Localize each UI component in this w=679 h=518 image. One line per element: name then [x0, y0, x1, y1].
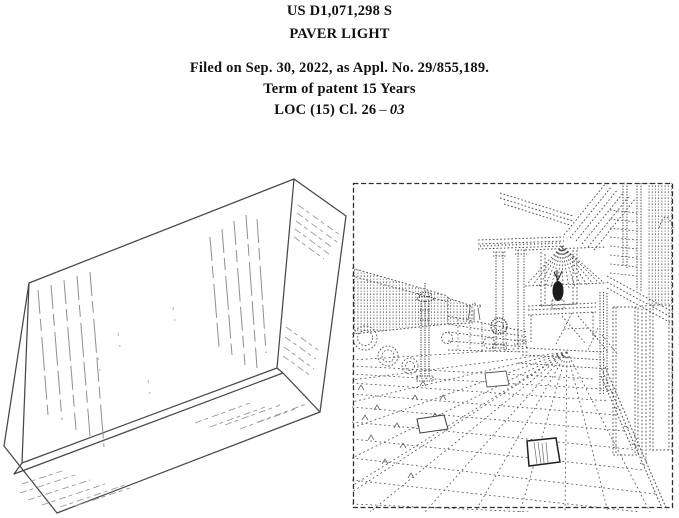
loc-class-number: 03	[390, 102, 405, 118]
loc-prefix: LOC (15) Cl. 26	[274, 102, 376, 118]
term-line: Term of patent 15 Years	[0, 81, 679, 97]
porch	[478, 237, 618, 369]
figure-perspective-view	[0, 175, 350, 515]
figure-environment-view	[350, 180, 676, 512]
fence	[352, 268, 472, 334]
patent-gazette-page: US D1,071,298 S PAVER LIGHT Filed on Sep…	[0, 0, 679, 518]
loc-dash: –	[379, 102, 386, 118]
house-roof	[500, 183, 636, 250]
paver-floor	[350, 348, 664, 512]
right-building	[600, 183, 673, 510]
loc-line: LOC (15) Cl. 26–03	[0, 102, 679, 118]
filed-line: Filed on Sep. 30, 2022, as Appl. No. 29/…	[0, 60, 679, 76]
patent-number: US D1,071,298 S	[0, 3, 679, 19]
design-title: PAVER LIGHT	[0, 26, 679, 42]
paver-light-tiles	[417, 371, 560, 466]
environment-border	[354, 184, 673, 508]
